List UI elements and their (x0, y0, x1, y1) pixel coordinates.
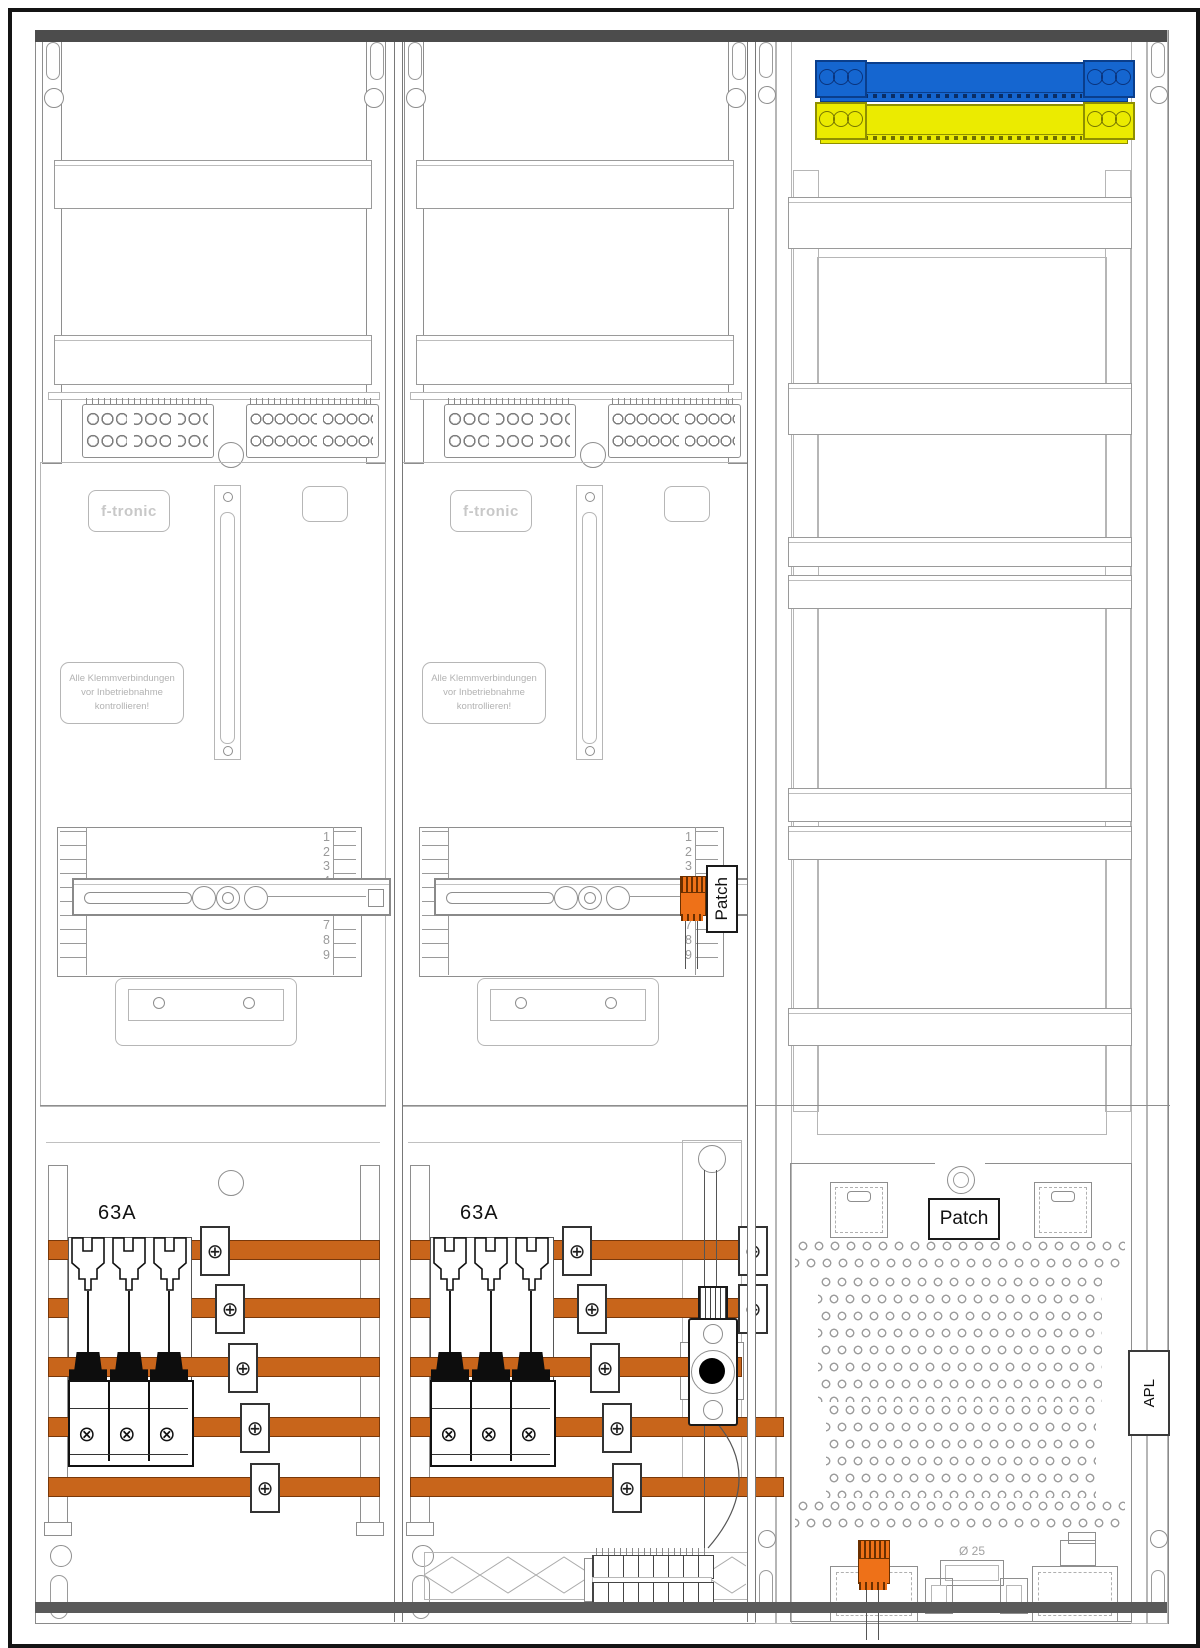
clamp-screw-icon: ⊕ (569, 1241, 586, 1261)
connection-field: Patch APL Ø 25 (752, 30, 1170, 1622)
blank-label (664, 486, 710, 522)
clamp-screw-icon: ⊕ (207, 1241, 224, 1261)
warning-text: Alle Klemmverbindungen vor Inbetriebnahm… (69, 672, 175, 713)
body-line (70, 1454, 188, 1455)
brand-label: f-tronic (450, 490, 532, 532)
blank-panel (817, 858, 1107, 1010)
din-rail (788, 383, 1132, 435)
rail-hole (758, 86, 776, 104)
breaker-hook-terminal (71, 1237, 105, 1291)
patch-connector-teeth (859, 1582, 887, 1590)
clamp-screw-icon: ⊕ (619, 1478, 636, 1498)
apl-label: APL (1128, 1350, 1170, 1436)
breaker-stem (490, 1291, 492, 1352)
breaker-rating: 63A (460, 1202, 499, 1225)
terminal-screw-icon: ⊗ (118, 1424, 136, 1445)
patch-wire (878, 1590, 879, 1640)
clamp-screw-icon: ⊕ (222, 1299, 239, 1319)
brand-text: f-tronic (101, 503, 157, 520)
busbar-clamp: ⊕ (562, 1226, 592, 1276)
bracket-screw-center (222, 892, 234, 904)
busbar-clamp: ⊕ (250, 1463, 280, 1513)
terminal-gap (679, 407, 685, 453)
rail-hole (44, 88, 64, 108)
din-rail (54, 335, 372, 385)
patch-wire (866, 1590, 867, 1640)
knockout-label: Ø 25 (942, 1544, 1002, 1558)
terminal-row-tabs (596, 1548, 708, 1555)
rail-slot (759, 42, 773, 78)
blank-label (302, 486, 348, 522)
bracket-rod (268, 896, 366, 897)
rail-hole (726, 88, 746, 108)
din-rail (788, 826, 1132, 860)
terminal-block (246, 404, 379, 458)
warning-label: Alle Klemmverbindungen vor Inbetriebnahm… (60, 662, 184, 724)
terminal-screw-icon: ⊗ (480, 1424, 498, 1445)
busbar-clamp: ⊕ (240, 1403, 270, 1453)
pole-divider (470, 1382, 472, 1461)
cutout-slot (847, 1191, 871, 1202)
breaker-body: ⊗ ⊗ ⊗ (68, 1380, 194, 1467)
terminal-screw-icon: ⊗ (158, 1424, 176, 1445)
bracket-hole (554, 886, 578, 910)
rail-hole (406, 88, 426, 108)
pe-bar-end (815, 102, 867, 140)
terminal-block (82, 404, 214, 458)
patch-wire (685, 921, 686, 969)
pole-divider (510, 1382, 512, 1461)
busbar-support (360, 1165, 380, 1527)
warning-label: Alle Klemmverbindungen vor Inbetriebnahm… (422, 662, 546, 724)
cutout-slot (1051, 1191, 1075, 1202)
patch-label: Patch (928, 1198, 1000, 1240)
knockout-frame-inner (945, 1565, 999, 1581)
device-wire (716, 1170, 717, 1286)
patch-connector-top (858, 1540, 890, 1560)
field-divider (747, 30, 756, 1622)
clamp-screw-icon: ⊕ (609, 1418, 626, 1438)
rail-hole (364, 88, 384, 108)
seal-hole (223, 746, 233, 756)
terminal-screw-icon: ⊗ (78, 1424, 96, 1445)
device-hole (703, 1400, 723, 1420)
perforation-grid (818, 1274, 1102, 1402)
bracket-hole (244, 886, 268, 910)
panel-cutout (1034, 1182, 1092, 1238)
rail-slot (370, 42, 384, 80)
seal-slot (582, 512, 597, 744)
neutral-bar-clamps (864, 94, 1082, 98)
meter-slide-bracket (72, 878, 391, 916)
brand-label: f-tronic (88, 490, 170, 532)
body-line (70, 1408, 188, 1409)
ct-aperture (699, 1358, 725, 1384)
panel-side-trim (793, 170, 819, 1112)
rail-slot (732, 42, 746, 80)
mounting-bracket-step (1068, 1532, 1096, 1544)
busbar-clamp: ⊕ (228, 1343, 258, 1393)
apl-label-text: APL (1141, 1379, 1158, 1407)
terminal-screw-icon: ⊗ (440, 1424, 458, 1445)
breaker-hook-terminal (112, 1237, 146, 1291)
din-rail (788, 197, 1132, 249)
warning-text: Alle Klemmverbindungen vor Inbetriebnahm… (431, 672, 537, 713)
section-divider (402, 1105, 748, 1106)
clamp-screw-icon: ⊕ (247, 1418, 264, 1438)
breaker-stem (530, 1291, 532, 1352)
breaker-stem (449, 1291, 451, 1352)
din-rail (788, 1008, 1132, 1046)
clamp-screw-icon: ⊕ (584, 1299, 601, 1319)
field-divider (394, 30, 403, 1622)
terminal-holes (612, 408, 735, 452)
terminal-hole (1115, 69, 1131, 85)
terminal-gap (533, 407, 540, 453)
bracket-slot (84, 892, 192, 904)
din-rail (54, 160, 372, 209)
seal-hole (585, 746, 595, 756)
section-divider (40, 1105, 386, 1106)
patch-connector-teeth (681, 914, 703, 921)
blank-panel (817, 257, 1107, 385)
rail-slot (1151, 42, 1165, 78)
scale-number: 1 (676, 830, 692, 843)
patch-connector-body (680, 892, 706, 916)
terminal-gap (489, 407, 496, 453)
clamp-screw-icon: ⊕ (257, 1478, 274, 1498)
section-divider (752, 1105, 1170, 1106)
seal-hole (585, 492, 595, 502)
din-rail (416, 335, 734, 385)
busbar-PE (48, 1477, 380, 1497)
pole-divider (148, 1382, 150, 1461)
din-rail (788, 788, 1132, 822)
scale-number: 2 (314, 845, 330, 858)
bracket-hole (606, 886, 630, 910)
plate-hole (515, 997, 527, 1009)
plate-hole (153, 997, 165, 1009)
terminal-hole (847, 69, 863, 85)
patch-label-text: Patch (712, 877, 732, 920)
terminal-gap (171, 407, 178, 453)
patch-label: Patch (706, 865, 738, 933)
blank-panel (817, 1044, 1107, 1135)
body-line (432, 1408, 550, 1409)
terminal-hole (1115, 111, 1131, 127)
mounting-plate (115, 978, 297, 1046)
perforation-grid (795, 1238, 1125, 1274)
meter-cabinet-drawing: f-tronic Alle Klemmverbindungen vor Inbe… (0, 0, 1200, 1648)
breaker-hook-terminal (153, 1237, 187, 1291)
scale-number: 7 (314, 918, 330, 931)
breaker-hook-terminal (433, 1237, 467, 1291)
pole-divider (108, 1382, 110, 1461)
terminal-holes (250, 408, 373, 452)
terminal-gap (127, 407, 134, 453)
breaker-stem (168, 1291, 170, 1352)
terminal-hole (847, 111, 863, 127)
busbar-clamp: ⊕ (612, 1463, 642, 1513)
blank-panel (817, 607, 1107, 790)
terminal-holes (448, 408, 570, 452)
terminal-block (608, 404, 741, 458)
seal-hole (223, 492, 233, 502)
body-line (432, 1454, 550, 1455)
rail-hole (1150, 1530, 1168, 1548)
terminal-block (444, 404, 576, 458)
pe-bar-end (1083, 102, 1135, 140)
busbar-clamp: ⊕ (590, 1343, 620, 1393)
breaker-body: ⊗ ⊗ ⊗ (430, 1380, 556, 1467)
side-rail (755, 30, 777, 1624)
clamp-screw-icon: ⊕ (235, 1358, 252, 1378)
busbar-clamp: ⊕ (577, 1284, 607, 1334)
breaker-hook-terminal (474, 1237, 508, 1291)
scale-number: 3 (676, 859, 692, 872)
ct-device (688, 1318, 738, 1426)
panel-side-trim (1105, 170, 1131, 1112)
bracket-screw-center (584, 892, 596, 904)
scale-number: 9 (676, 948, 692, 961)
rail-slot (46, 42, 60, 80)
seal-slot (220, 512, 235, 744)
breaker-stem (87, 1291, 89, 1352)
terminal-holes (86, 408, 208, 452)
din-rail (788, 575, 1132, 609)
breaker-stem (128, 1291, 130, 1352)
blank-panel (817, 433, 1107, 539)
rail-hole (758, 1530, 776, 1548)
plate-hole (605, 997, 617, 1009)
busbar-clamp: ⊕ (215, 1284, 245, 1334)
rail-hole (1150, 86, 1168, 104)
bracket-endcap (368, 889, 384, 907)
busbar-support (410, 1165, 430, 1527)
mounting-plate (477, 978, 659, 1046)
rail-hole (50, 1545, 72, 1567)
device-hole (703, 1324, 723, 1344)
pe-bar-clamps (864, 136, 1082, 140)
mounting-plate-inner (128, 989, 284, 1021)
clamp-screw-icon: ⊕ (597, 1358, 614, 1378)
cover-edge (46, 1142, 380, 1143)
neutral-bar-end (815, 60, 867, 98)
scale-number: 3 (314, 859, 330, 872)
cover-grommet (218, 1170, 244, 1196)
panel-cutout (830, 1182, 888, 1238)
mounting-plate-inner (490, 989, 646, 1021)
brand-text: f-tronic (463, 503, 519, 520)
meter-field-2: f-tronic Alle Klemmverbindungen vor Inbe… (402, 30, 748, 1622)
panel-cutout (1032, 1566, 1118, 1622)
scale-number: 8 (676, 933, 692, 946)
support-foot (356, 1522, 384, 1536)
scale-number: 9 (314, 948, 330, 961)
din-rail (416, 160, 734, 209)
din-rail (788, 537, 1132, 567)
panel-grommet-inner (953, 1172, 969, 1188)
cabinet-top-rail (35, 30, 1167, 42)
patch-label-text: Patch (940, 1208, 989, 1230)
busbar-clamp: ⊕ (602, 1403, 632, 1453)
bracket-slot (446, 892, 554, 904)
support-foot (406, 1522, 434, 1536)
scale-number: 1 (314, 830, 330, 843)
neutral-bar-end (1083, 60, 1135, 98)
meter-field-1: f-tronic Alle Klemmverbindungen vor Inbe… (40, 30, 386, 1622)
rail-slot (408, 42, 422, 80)
patch-wire (697, 921, 698, 969)
cabinet-bottom-rail (35, 1602, 1167, 1613)
scale-number: 2 (676, 845, 692, 858)
perforation-grid (795, 1498, 1125, 1534)
scale-number: 8 (314, 933, 330, 946)
terminal-row (592, 1555, 714, 1579)
busbar-clamp: ⊕ (200, 1226, 230, 1276)
breaker-rating: 63A (98, 1202, 137, 1225)
bracket-hole (192, 886, 216, 910)
terminal-gap (317, 407, 323, 453)
terminal-screw-icon: ⊗ (520, 1424, 538, 1445)
breaker-hook-terminal (515, 1237, 549, 1291)
device-wire (704, 1170, 705, 1286)
busbar-support (48, 1165, 68, 1527)
support-foot (44, 1522, 72, 1536)
plate-hole (243, 997, 255, 1009)
perforation-grid (826, 1402, 1096, 1498)
patch-connector-body (858, 1558, 890, 1584)
